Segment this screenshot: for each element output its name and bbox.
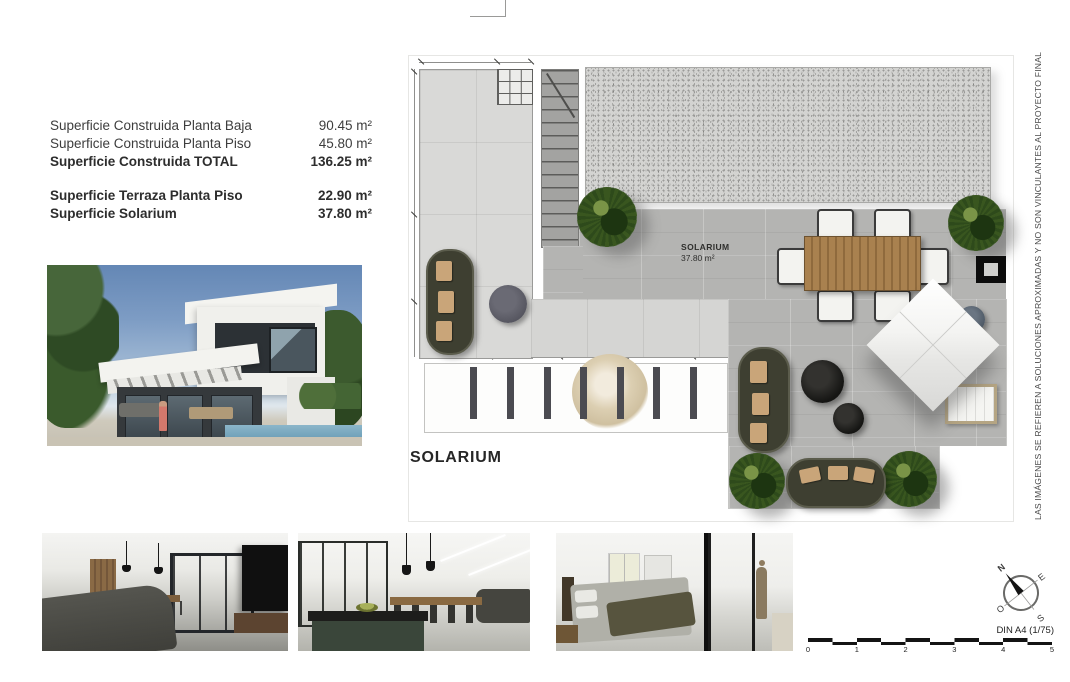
plant	[729, 453, 785, 509]
surface-table: Superficie Construida Planta Baja 90.45 …	[50, 117, 372, 223]
plant	[577, 187, 637, 247]
pendant-lamp	[158, 543, 159, 569]
small-stair	[497, 69, 533, 105]
person	[756, 567, 767, 619]
compass-east-label: E	[1036, 571, 1047, 583]
pillow	[576, 605, 599, 619]
row-label: Superficie Construida Planta Piso	[50, 135, 251, 153]
sofa	[786, 458, 886, 508]
pergola	[424, 363, 728, 433]
sofa-cushion	[750, 423, 767, 443]
sideboard	[234, 613, 288, 633]
table-row: Superficie Solarium 37.80 m²	[50, 205, 372, 223]
scale-tick-label: 4	[1001, 645, 1005, 654]
villa-window	[269, 327, 317, 373]
disclaimer-text: LAS IMÁGENES SE REFIEREN A SOLUCIONES AP…	[1033, 55, 1047, 520]
stair-direction-line	[546, 73, 575, 118]
sofa-cushion	[853, 466, 875, 483]
nightstand	[556, 625, 578, 643]
fruit-bowl	[356, 603, 378, 612]
row-label: Superficie Solarium	[50, 205, 177, 223]
photo-exterior-villa	[47, 265, 362, 446]
room-area: 37.80 m²	[681, 253, 730, 264]
compass-south-label: S	[1035, 612, 1046, 624]
pergola-slat	[580, 367, 587, 419]
pillow	[575, 589, 598, 603]
row-value: 37.80 m²	[318, 205, 372, 223]
palm-tree	[47, 265, 119, 428]
compass-icon: N E S O	[986, 551, 1056, 635]
dimension-mark	[470, 16, 506, 17]
round-table	[489, 285, 527, 323]
plan-caption: SOLARIUM	[410, 449, 502, 467]
plant	[881, 451, 937, 507]
scale-bar	[808, 638, 1052, 645]
row-label: Superficie Construida Planta Baja	[50, 117, 252, 135]
staircase	[541, 69, 579, 248]
kitchen-island	[312, 621, 424, 651]
terrace-floor-outside	[772, 613, 793, 651]
pendant-lamp	[430, 533, 431, 563]
dining-table	[804, 236, 921, 291]
row-value: 136.25 m²	[310, 153, 372, 171]
photo-bedroom	[556, 533, 793, 651]
row-label: Superficie Terraza Planta Piso	[50, 187, 243, 205]
room-name: SOLARIUM	[681, 242, 730, 253]
table-row-total: Superficie Construida TOTAL 136.25 m²	[50, 153, 372, 171]
solarium-floor-stairfoot	[543, 246, 583, 299]
pouf	[833, 403, 864, 434]
compass-north-label: N	[996, 562, 1007, 574]
brochure-page: Superficie Construida Planta Baja 90.45 …	[0, 0, 1070, 682]
sofa-cushion	[750, 361, 767, 383]
outdoor-dining	[189, 407, 233, 419]
row-value: 45.80 m²	[319, 135, 372, 153]
sofa-cushion	[828, 466, 848, 480]
photo-living-room	[42, 533, 288, 651]
table-row: Superficie Construida Planta Baja 90.45 …	[50, 117, 372, 135]
photo-kitchen	[298, 533, 530, 651]
sofa-cushion	[436, 261, 452, 281]
pergola-slat	[653, 367, 660, 419]
chimney-marker-inner	[984, 263, 998, 276]
sofa-cushion	[436, 321, 452, 341]
dining-table	[390, 597, 482, 605]
pergola-slat	[544, 367, 551, 419]
sofa	[476, 589, 530, 623]
scale-tick-label: 5	[1050, 645, 1054, 654]
pendant-lamp	[406, 533, 407, 567]
sofa-cushion	[799, 466, 821, 484]
chimney-marker	[976, 256, 1006, 283]
dimension-line	[419, 62, 531, 63]
scale-tick-label: 2	[904, 645, 908, 654]
walkway-floor	[531, 299, 728, 358]
scale-tick-label: 0	[806, 645, 810, 654]
pouf	[801, 360, 844, 403]
ceiling-light-strip	[468, 548, 530, 576]
table-row: Superficie Construida Planta Piso 45.80 …	[50, 135, 372, 153]
row-value: 90.45 m²	[319, 117, 372, 135]
scale-tick-label: 1	[855, 645, 859, 654]
dining-chair	[817, 290, 854, 322]
scale-bar-ticks: 0 1 2 3 4 5	[808, 645, 1052, 655]
kitchen-island-counter	[308, 611, 428, 621]
tv-panel	[242, 545, 288, 611]
pergola-slat	[470, 367, 477, 419]
scale-tick-label: 3	[952, 645, 956, 654]
pergola-slat	[507, 367, 514, 419]
sofa	[426, 249, 474, 355]
dimension-mark	[505, 0, 506, 17]
villa-glass-door	[125, 395, 161, 441]
scale-format-label: DIN A4 (1/75)	[930, 625, 1054, 636]
pergola-slat	[690, 367, 697, 419]
outdoor-sofa	[119, 403, 161, 417]
table-row: Superficie Terraza Planta Piso 22.90 m²	[50, 187, 372, 205]
plant	[948, 195, 1004, 251]
sofa-cushion	[438, 291, 454, 313]
row-value: 22.90 m²	[318, 187, 372, 205]
sofa	[42, 583, 178, 651]
person	[159, 401, 167, 431]
ceiling-light-strip	[440, 534, 506, 562]
deck	[47, 437, 362, 446]
gravel-roof	[585, 67, 991, 203]
hedge	[299, 383, 361, 409]
row-label: Superficie Construida TOTAL	[50, 153, 238, 171]
pergola-slat	[617, 367, 624, 419]
compass-west-label: O	[995, 603, 1007, 615]
room-label: SOLARIUM 37.80 m²	[681, 242, 730, 264]
sofa-cushion	[752, 393, 769, 415]
sofa	[738, 347, 790, 453]
pendant-lamp	[126, 541, 127, 567]
